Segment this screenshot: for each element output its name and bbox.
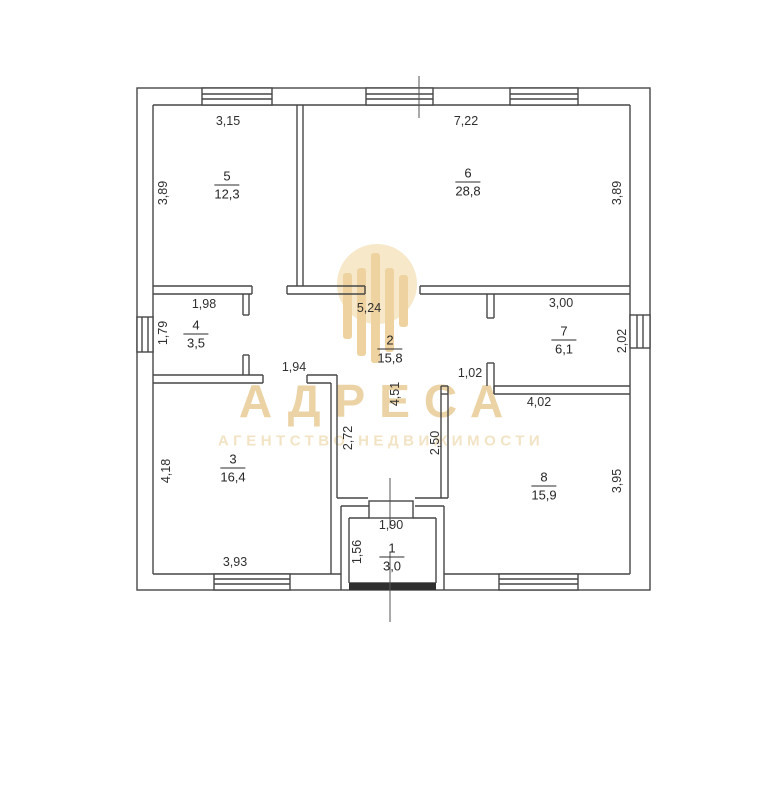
dim-corridor-right: 2,50	[428, 431, 442, 455]
dim-room5-width: 3,15	[216, 114, 240, 128]
dim-hall-width: 5,24	[357, 301, 381, 315]
dim-room3-height: 4,18	[159, 459, 173, 483]
dim-corridor-left: 2,72	[341, 426, 355, 450]
dim-room8-height: 3,95	[610, 469, 624, 493]
room-label-2: 2 15,8	[377, 333, 402, 366]
room-label-1: 1 3,0	[379, 541, 404, 574]
dim-room3-width: 3,93	[223, 555, 247, 569]
dim-room5-height: 3,89	[156, 181, 170, 205]
dim-hall-wall-segment: 1,94	[282, 360, 306, 374]
dim-room4-width: 1,98	[192, 297, 216, 311]
room-label-4: 4 3,5	[183, 318, 208, 351]
room-label-5: 5 12,3	[214, 169, 239, 202]
dim-room8-door: 1,02	[458, 366, 482, 380]
dim-room7-width: 3,00	[549, 296, 573, 310]
room-label-6: 6 28,8	[455, 166, 480, 199]
dim-room4-height: 1,79	[156, 321, 170, 345]
dim-hall-height: 4,51	[388, 382, 402, 406]
floor-plan-page: АДРЕСА АГЕНТСТВО НЕДВИЖИМОСТИ	[0, 0, 758, 800]
room-label-7: 7 6,1	[551, 324, 576, 357]
dim-room7-height: 2,02	[615, 329, 629, 353]
room-label-3: 3 16,4	[220, 452, 245, 485]
plan-labels: 5 12,3 6 28,8 4 3,5 2 15,8 7 6,1 3 16,4 …	[0, 0, 758, 800]
dim-vestibule-width: 1,90	[379, 518, 403, 532]
dim-vestibule-height: 1,56	[350, 540, 364, 564]
dim-room8-width: 4,02	[527, 395, 551, 409]
dim-room6-height: 3,89	[610, 181, 624, 205]
room-label-8: 8 15,9	[531, 470, 556, 503]
dim-room6-width: 7,22	[454, 114, 478, 128]
